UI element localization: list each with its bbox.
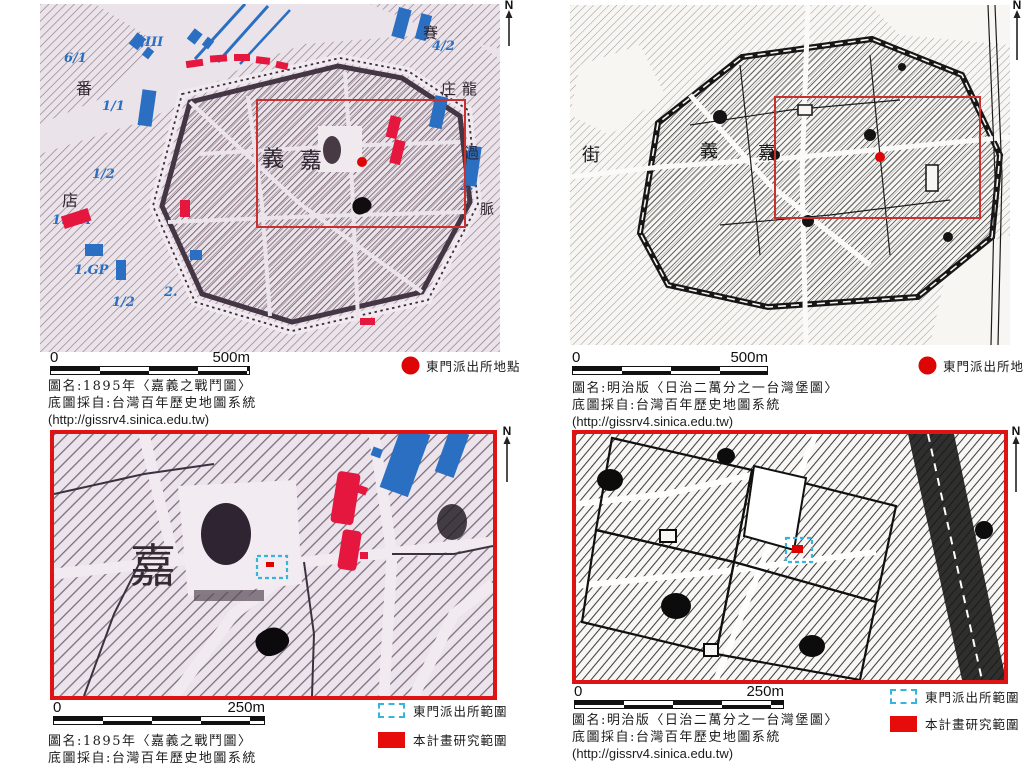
blue-label: 1/1: [102, 99, 125, 114]
legend-label: 本計畫研究範圍: [413, 730, 508, 749]
north-arrow: N: [1008, 426, 1024, 492]
plaza-mound: [323, 136, 341, 164]
blue-label: 1/2: [112, 295, 135, 310]
north-arrow: N: [499, 426, 515, 482]
label-dian: 店: [62, 191, 78, 210]
legend: 東門派出所範圍 本計畫研究範圍: [378, 701, 508, 749]
legend-label: 東門派出所範圍: [413, 701, 508, 720]
caption-url: (http://gissrv4.sinica.edu.tw): [572, 747, 839, 760]
label-guo: 過: [464, 144, 479, 162]
label-jia: 嘉: [300, 149, 322, 174]
dashed-box-icon: [378, 703, 405, 718]
label-jia: 嘉: [130, 539, 176, 593]
scale-start: 0: [574, 684, 582, 699]
map-1895-overview: 6/1 合III 1/1 1/2 1.G.A 1.GP 1/2 2. 4/2 2…: [40, 4, 500, 352]
legend: 東門派出所地點: [920, 356, 1024, 375]
map-taiwanbao-detail: [572, 430, 1008, 684]
map-taiwanbao-detail-canvas: [576, 434, 1004, 680]
blue-label: 1.GP: [74, 263, 110, 278]
grove: [437, 504, 467, 540]
caption-url: (http://gissrv4.sinica.edu.tw): [572, 415, 839, 428]
blue-label: 合III: [132, 34, 164, 50]
north-label: N: [499, 426, 515, 436]
scale-end: 250m: [746, 684, 784, 699]
caption-source: 底圖採自:台灣百年歷史地圖系統: [572, 730, 839, 745]
north-arrow-icon: [504, 10, 514, 46]
north-arrow-icon: [1011, 436, 1021, 492]
red-dot-icon: [403, 358, 418, 373]
caption-map-name: 圖名:明治版〈日治二萬分之一台灣堡圖〉: [572, 713, 839, 728]
caption: 圖名:明治版〈日治二萬分之一台灣堡圖〉 底圖採自:台灣百年歷史地圖系統 (htt…: [572, 381, 839, 428]
legend-item: 本計畫研究範圍: [378, 730, 508, 749]
caption: 圖名:1895年〈嘉義之戰鬥圖〉 底圖採自:台灣百年歷史地圖系統: [48, 734, 257, 768]
legend-item: 東門派出所範圍: [890, 687, 1020, 706]
scale-bar: 0 500m: [572, 350, 768, 375]
building-row: [194, 590, 264, 601]
map-taiwanbao-overview-canvas: 街 義 嘉: [570, 5, 1010, 345]
map-1895-detail-canvas: 嘉: [54, 434, 493, 696]
scale-start: 0: [572, 350, 580, 365]
east-gate-dot: [875, 152, 885, 162]
caption-map-name: 圖名:明治版〈日治二萬分之一台灣堡圖〉: [572, 381, 839, 396]
legend-label: 東門派出所地點: [426, 356, 521, 375]
blue-label: 2.: [459, 179, 474, 194]
blue-label: 2.: [163, 285, 178, 300]
label-fan: 番: [76, 79, 92, 98]
east-gate-mark: [792, 545, 803, 553]
label-zhuang: 庄: [441, 80, 456, 98]
city-wall: [162, 66, 470, 322]
north-arrow: N: [1009, 0, 1024, 60]
blue-label: 1/2: [92, 167, 115, 182]
map-1895-overview-canvas: 6/1 合III 1/1 1/2 1.G.A 1.GP 1/2 2. 4/2 2…: [40, 4, 500, 352]
legend-label: 本計畫研究範圍: [925, 714, 1020, 733]
scale-bar-strip: [574, 700, 784, 709]
plaza-mound: [201, 503, 251, 565]
label-mai: 脈: [480, 202, 494, 218]
legend-item: 東門派出所範圍: [378, 701, 508, 720]
scale-bar-strip: [53, 716, 265, 725]
map-1895-detail: 嘉: [50, 430, 497, 700]
scale-bar: 0 500m: [50, 350, 250, 375]
caption: 圖名:1895年〈嘉義之戰鬥圖〉 底圖採自:台灣百年歷史地圖系統 (http:/…: [48, 379, 257, 426]
north-arrow-icon: [1012, 10, 1022, 60]
scale-end: 500m: [730, 350, 768, 365]
caption-source: 底圖採自:台灣百年歷史地圖系統: [48, 396, 257, 411]
legend-label: 東門派出所地點: [943, 356, 1024, 375]
scale-end: 500m: [212, 350, 250, 365]
scale-start: 0: [53, 700, 61, 715]
caption-source: 底圖採自:台灣百年歷史地圖系統: [48, 751, 257, 766]
legend: 東門派出所範圍 本計畫研究範圍: [890, 687, 1020, 733]
scale-bar-strip: [50, 366, 250, 375]
legend-item: 東門派出所地點: [920, 356, 1024, 375]
caption-map-name: 圖名:1895年〈嘉義之戰鬥圖〉: [48, 734, 257, 749]
label-sai: 賽: [423, 24, 438, 42]
north-label: N: [1008, 426, 1024, 436]
caption-url: (http://gissrv4.sinica.edu.tw): [48, 413, 257, 426]
north-label: N: [501, 0, 517, 10]
scale-bar: 0 250m: [53, 700, 265, 725]
label-jie: 街: [582, 145, 600, 166]
east-gate-mark: [266, 562, 274, 567]
blue-label: 6/1: [64, 51, 87, 66]
label-jia: 嘉: [758, 143, 776, 164]
label-yi: 義: [262, 147, 284, 172]
legend-label: 東門派出所範圍: [925, 687, 1020, 706]
north-arrow-icon: [502, 436, 512, 482]
legend-item: 東門派出所地點: [403, 356, 521, 375]
map-taiwanbao-overview: 街 義 嘉: [570, 5, 1010, 345]
caption-map-name: 圖名:1895年〈嘉義之戰鬥圖〉: [48, 379, 257, 394]
red-box-icon: [890, 716, 917, 732]
caption: 圖名:明治版〈日治二萬分之一台灣堡圖〉 底圖採自:台灣百年歷史地圖系統 (htt…: [572, 713, 839, 760]
red-box-icon: [378, 732, 405, 748]
dashed-box-icon: [890, 689, 917, 704]
scale-end: 250m: [227, 700, 265, 715]
label-yi: 義: [700, 141, 718, 162]
caption-source: 底圖採自:台灣百年歷史地圖系統: [572, 398, 839, 413]
east-gate-dot: [357, 157, 367, 167]
scale-bar-strip: [572, 366, 768, 375]
legend: 東門派出所地點: [403, 356, 521, 375]
scale-start: 0: [50, 350, 58, 365]
north-label: N: [1009, 0, 1024, 10]
scale-bar: 0 250m: [574, 684, 784, 709]
red-dot-icon: [920, 358, 935, 373]
legend-item: 本計畫研究範圍: [890, 714, 1020, 733]
north-arrow: N: [501, 0, 517, 46]
label-long: 龍: [462, 80, 477, 98]
